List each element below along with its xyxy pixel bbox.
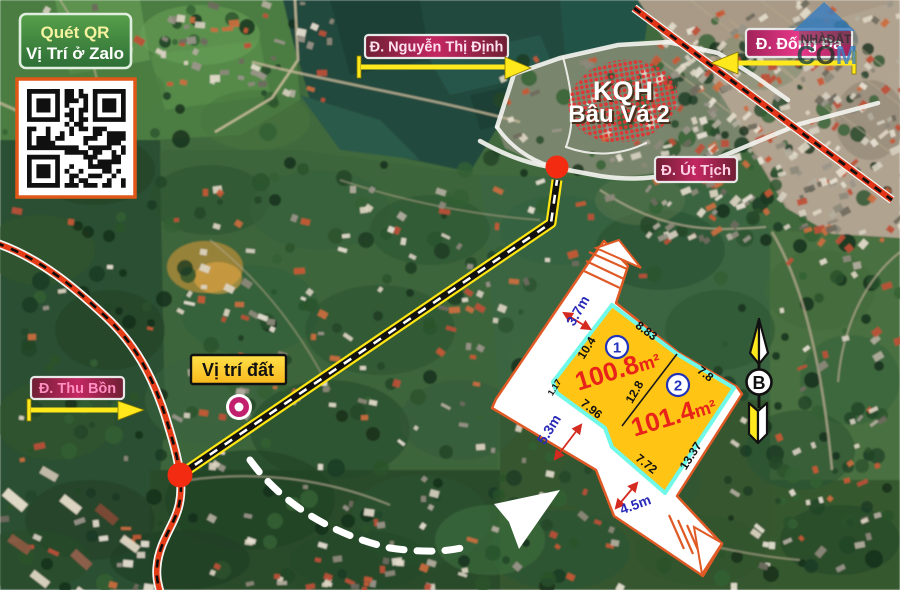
svg-text:Đ. Út Tịch: Đ. Út Tịch: [661, 161, 731, 179]
svg-text:1: 1: [613, 340, 621, 357]
svg-text:2: 2: [674, 378, 682, 395]
svg-text:Đ. Nguyễn Thị Định: Đ. Nguyễn Thị Định: [370, 39, 504, 56]
svg-text:Đ. Thu Bồn: Đ. Thu Bồn: [39, 381, 116, 397]
svg-text:Quét QR: Quét QR: [41, 23, 110, 42]
svg-text:B: B: [753, 373, 766, 393]
svg-text:COM: COM: [797, 40, 858, 70]
svg-text:Vị Trí ở Zalo: Vị Trí ở Zalo: [26, 44, 124, 63]
svg-text:Vị trí đất: Vị trí đất: [202, 360, 274, 380]
svg-text:Bầu Vá 2: Bầu Vá 2: [568, 101, 669, 128]
